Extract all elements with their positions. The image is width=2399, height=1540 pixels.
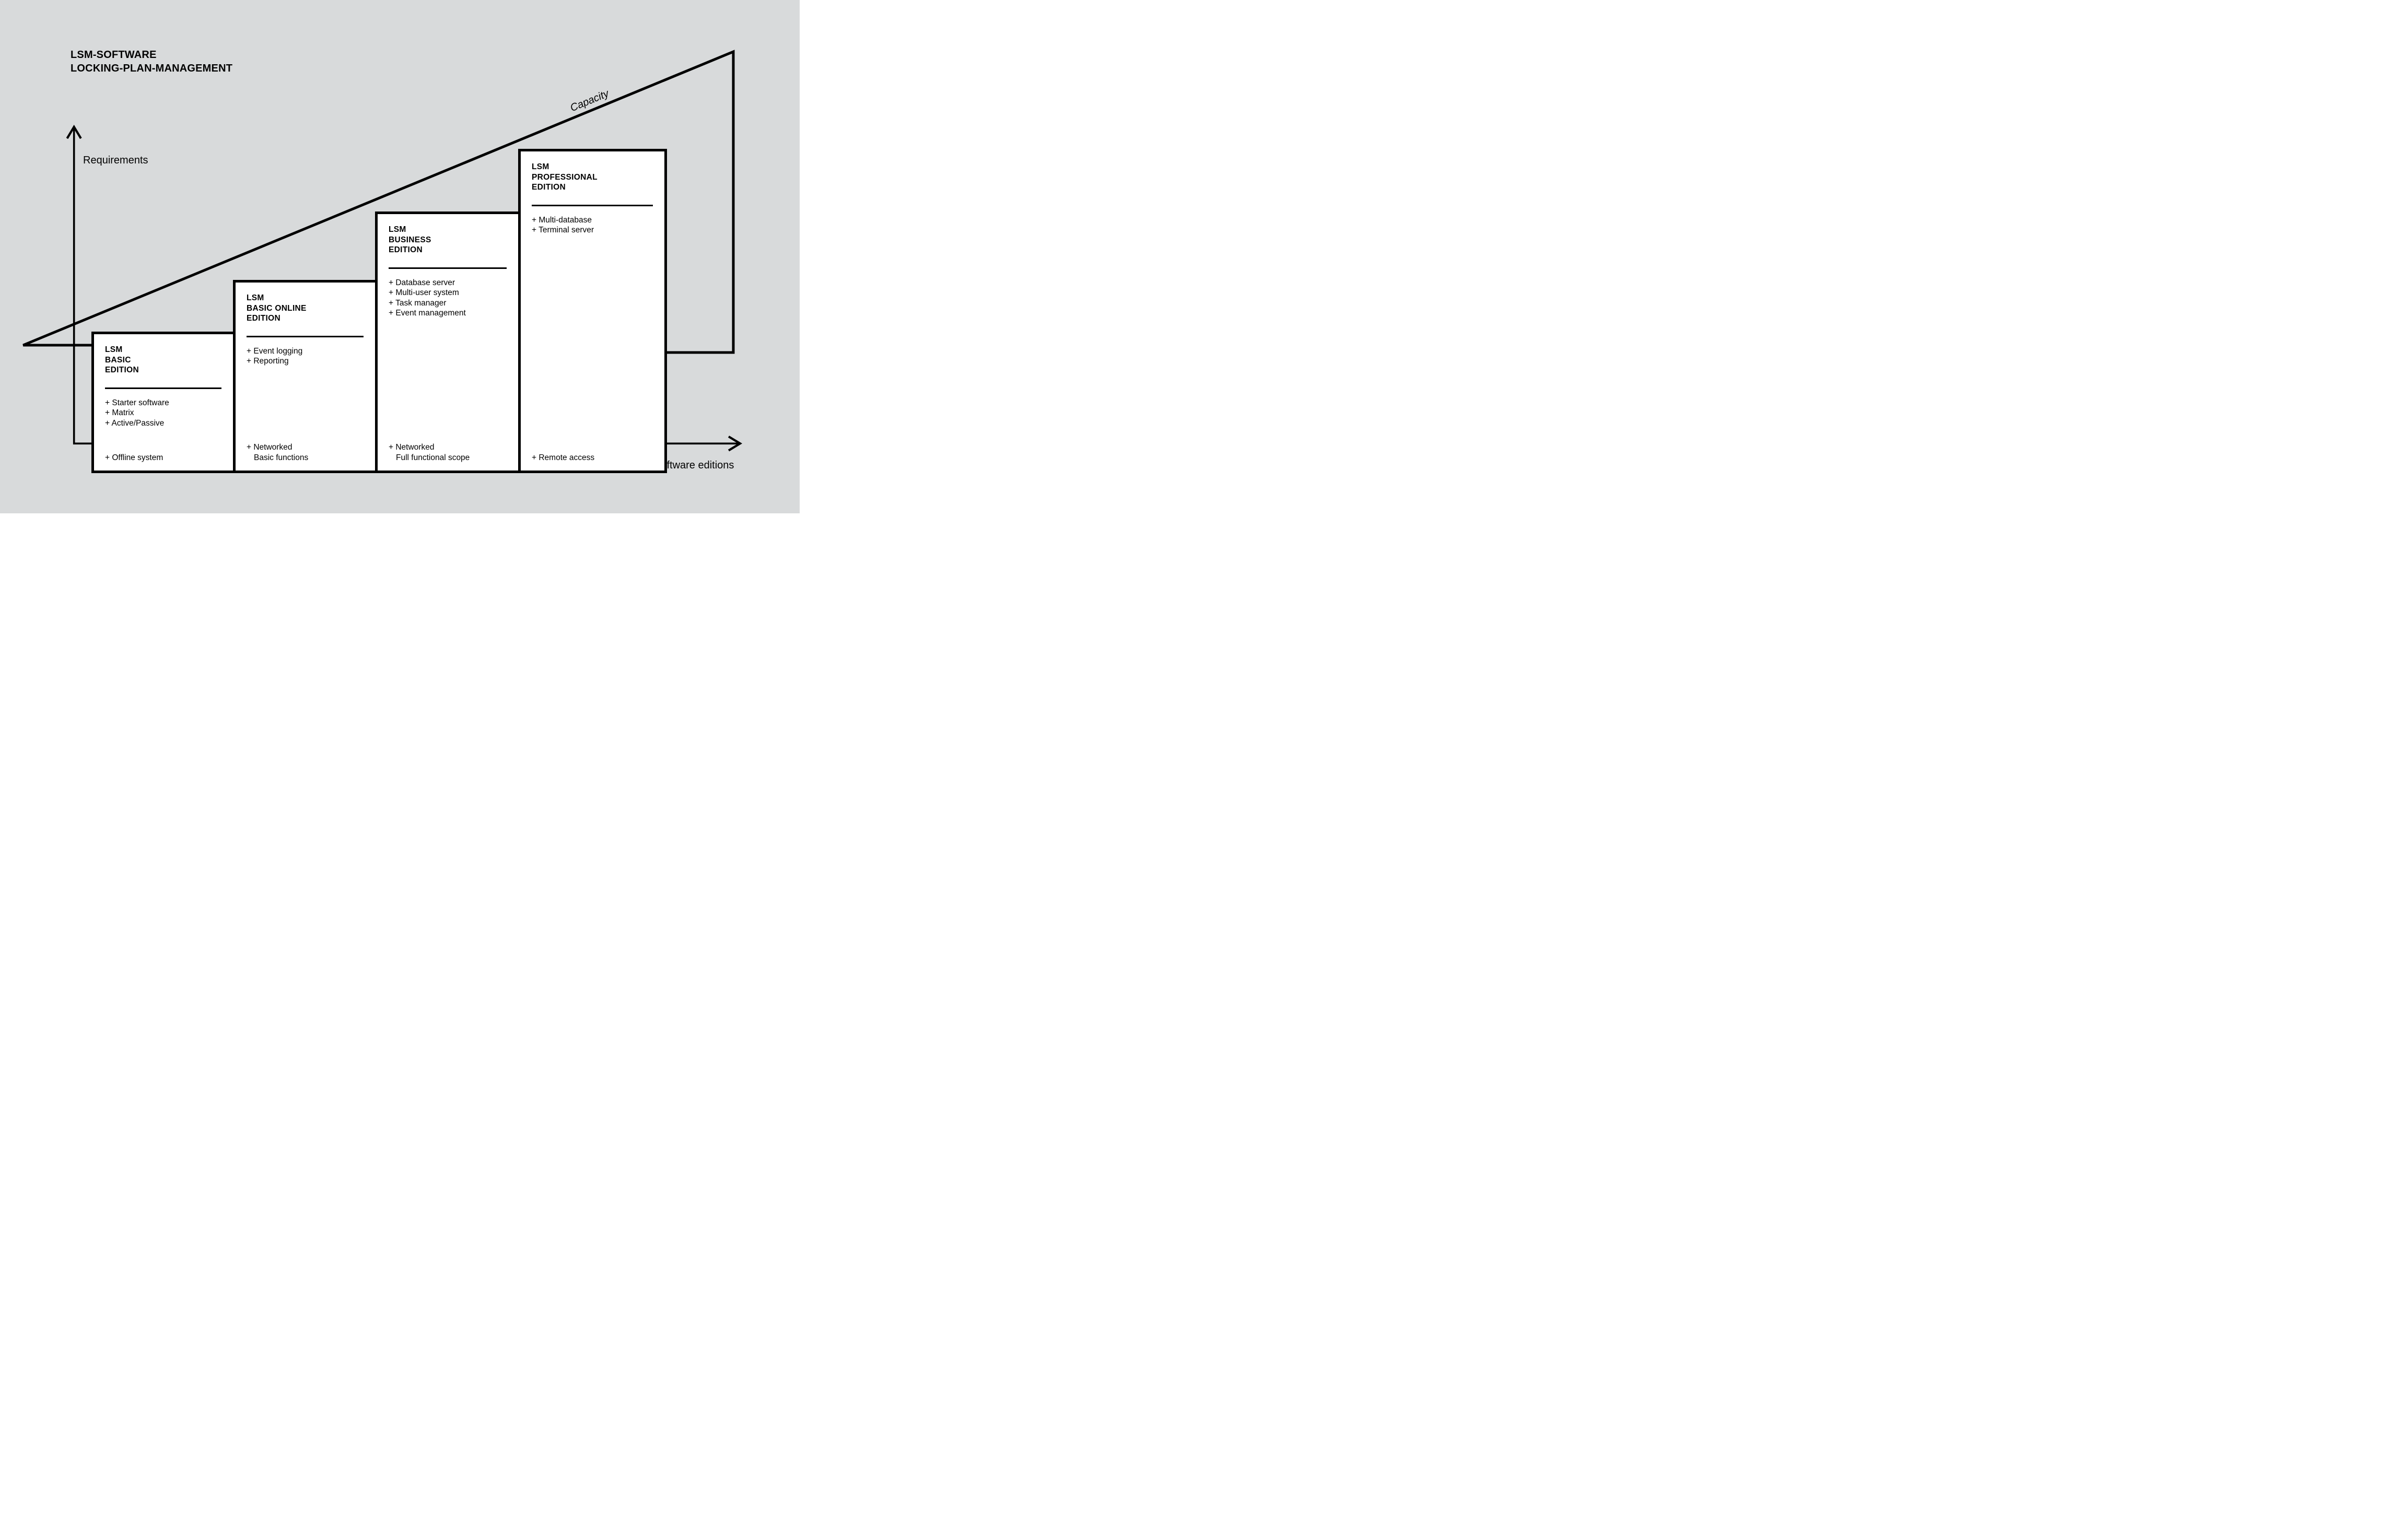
- heading-divider: [247, 336, 364, 337]
- box-title-line: EDITION: [247, 313, 364, 324]
- bottom-feature-list: + Remote access: [532, 453, 659, 463]
- edition-box-professional: LSM PROFESSIONAL EDITION + Multi-databas…: [518, 149, 667, 473]
- box-title-line: EDITION: [105, 365, 221, 375]
- feature-item: + Matrix: [105, 408, 221, 418]
- bottom-feature-item: Basic functions: [247, 453, 370, 463]
- diagram-canvas: LSM-SOFTWARE LOCKING-PLAN-MANAGEMENT Req…: [0, 0, 800, 513]
- feature-item: + Task manager: [389, 298, 507, 309]
- box-content: LSM PROFESSIONAL EDITION + Multi-databas…: [521, 151, 664, 236]
- box-title-line: PROFESSIONAL: [532, 172, 653, 183]
- box-title-line: LSM: [532, 162, 653, 172]
- bottom-feature-list: + Offline system: [105, 453, 228, 463]
- bottom-feature-item: + Remote access: [532, 453, 659, 463]
- feature-item: + Reporting: [247, 356, 364, 367]
- feature-item: + Multi-database: [532, 215, 653, 226]
- y-axis-label: Requirements: [83, 155, 148, 167]
- heading-divider: [389, 267, 507, 269]
- bottom-feature-list: + Networked Full functional scope: [389, 442, 513, 463]
- bottom-feature-item: + Networked: [247, 442, 370, 453]
- box-title: LSM PROFESSIONAL EDITION: [532, 162, 653, 193]
- bottom-feature-item: Full functional scope: [389, 453, 513, 463]
- feature-item: + Starter software: [105, 398, 221, 408]
- feature-list: + Database server + Multi-user system + …: [389, 278, 507, 319]
- box-title: LSM BASIC ONLINE EDITION: [247, 293, 364, 324]
- edition-box-business: LSM BUSINESS EDITION + Database server +…: [375, 211, 521, 473]
- feature-item: + Active/Passive: [105, 418, 221, 429]
- box-title: LSM BASIC EDITION: [105, 345, 221, 375]
- box-content: LSM BASIC ONLINE EDITION + Event logging…: [236, 283, 375, 367]
- box-title-line: BUSINESS: [389, 235, 507, 245]
- box-title-line: BASIC: [105, 355, 221, 366]
- bottom-feature-item: + Offline system: [105, 453, 228, 463]
- box-title-line: LSM: [389, 225, 507, 235]
- edition-box-basic: LSM BASIC EDITION + Starter software + M…: [91, 332, 236, 473]
- feature-item: + Multi-user system: [389, 288, 507, 298]
- feature-list: + Starter software + Matrix + Active/Pas…: [105, 398, 221, 429]
- heading-divider: [532, 205, 653, 206]
- box-title-line: LSM: [247, 293, 364, 303]
- feature-item: + Event logging: [247, 346, 364, 357]
- box-title-line: BASIC ONLINE: [247, 303, 364, 314]
- box-content: LSM BUSINESS EDITION + Database server +…: [378, 214, 518, 319]
- feature-item: + Database server: [389, 278, 507, 288]
- box-title: LSM BUSINESS EDITION: [389, 225, 507, 255]
- feature-list: + Multi-database + Terminal server: [532, 215, 653, 236]
- feature-item: + Event management: [389, 308, 507, 319]
- box-title-line: EDITION: [532, 182, 653, 193]
- box-title-line: LSM: [105, 345, 221, 355]
- page-title: LSM-SOFTWARE LOCKING-PLAN-MANAGEMENT: [71, 48, 232, 75]
- bottom-feature-item: + Networked: [389, 442, 513, 453]
- box-title-line: EDITION: [389, 245, 507, 255]
- title-line-2: LOCKING-PLAN-MANAGEMENT: [71, 62, 232, 75]
- title-line-1: LSM-SOFTWARE: [71, 48, 232, 62]
- box-content: LSM BASIC EDITION + Starter software + M…: [94, 334, 233, 428]
- edition-box-basic-online: LSM BASIC ONLINE EDITION + Event logging…: [233, 280, 378, 473]
- feature-list: + Event logging + Reporting: [247, 346, 364, 367]
- heading-divider: [105, 387, 221, 389]
- feature-item: + Terminal server: [532, 225, 653, 236]
- bottom-feature-list: + Networked Basic functions: [247, 442, 370, 463]
